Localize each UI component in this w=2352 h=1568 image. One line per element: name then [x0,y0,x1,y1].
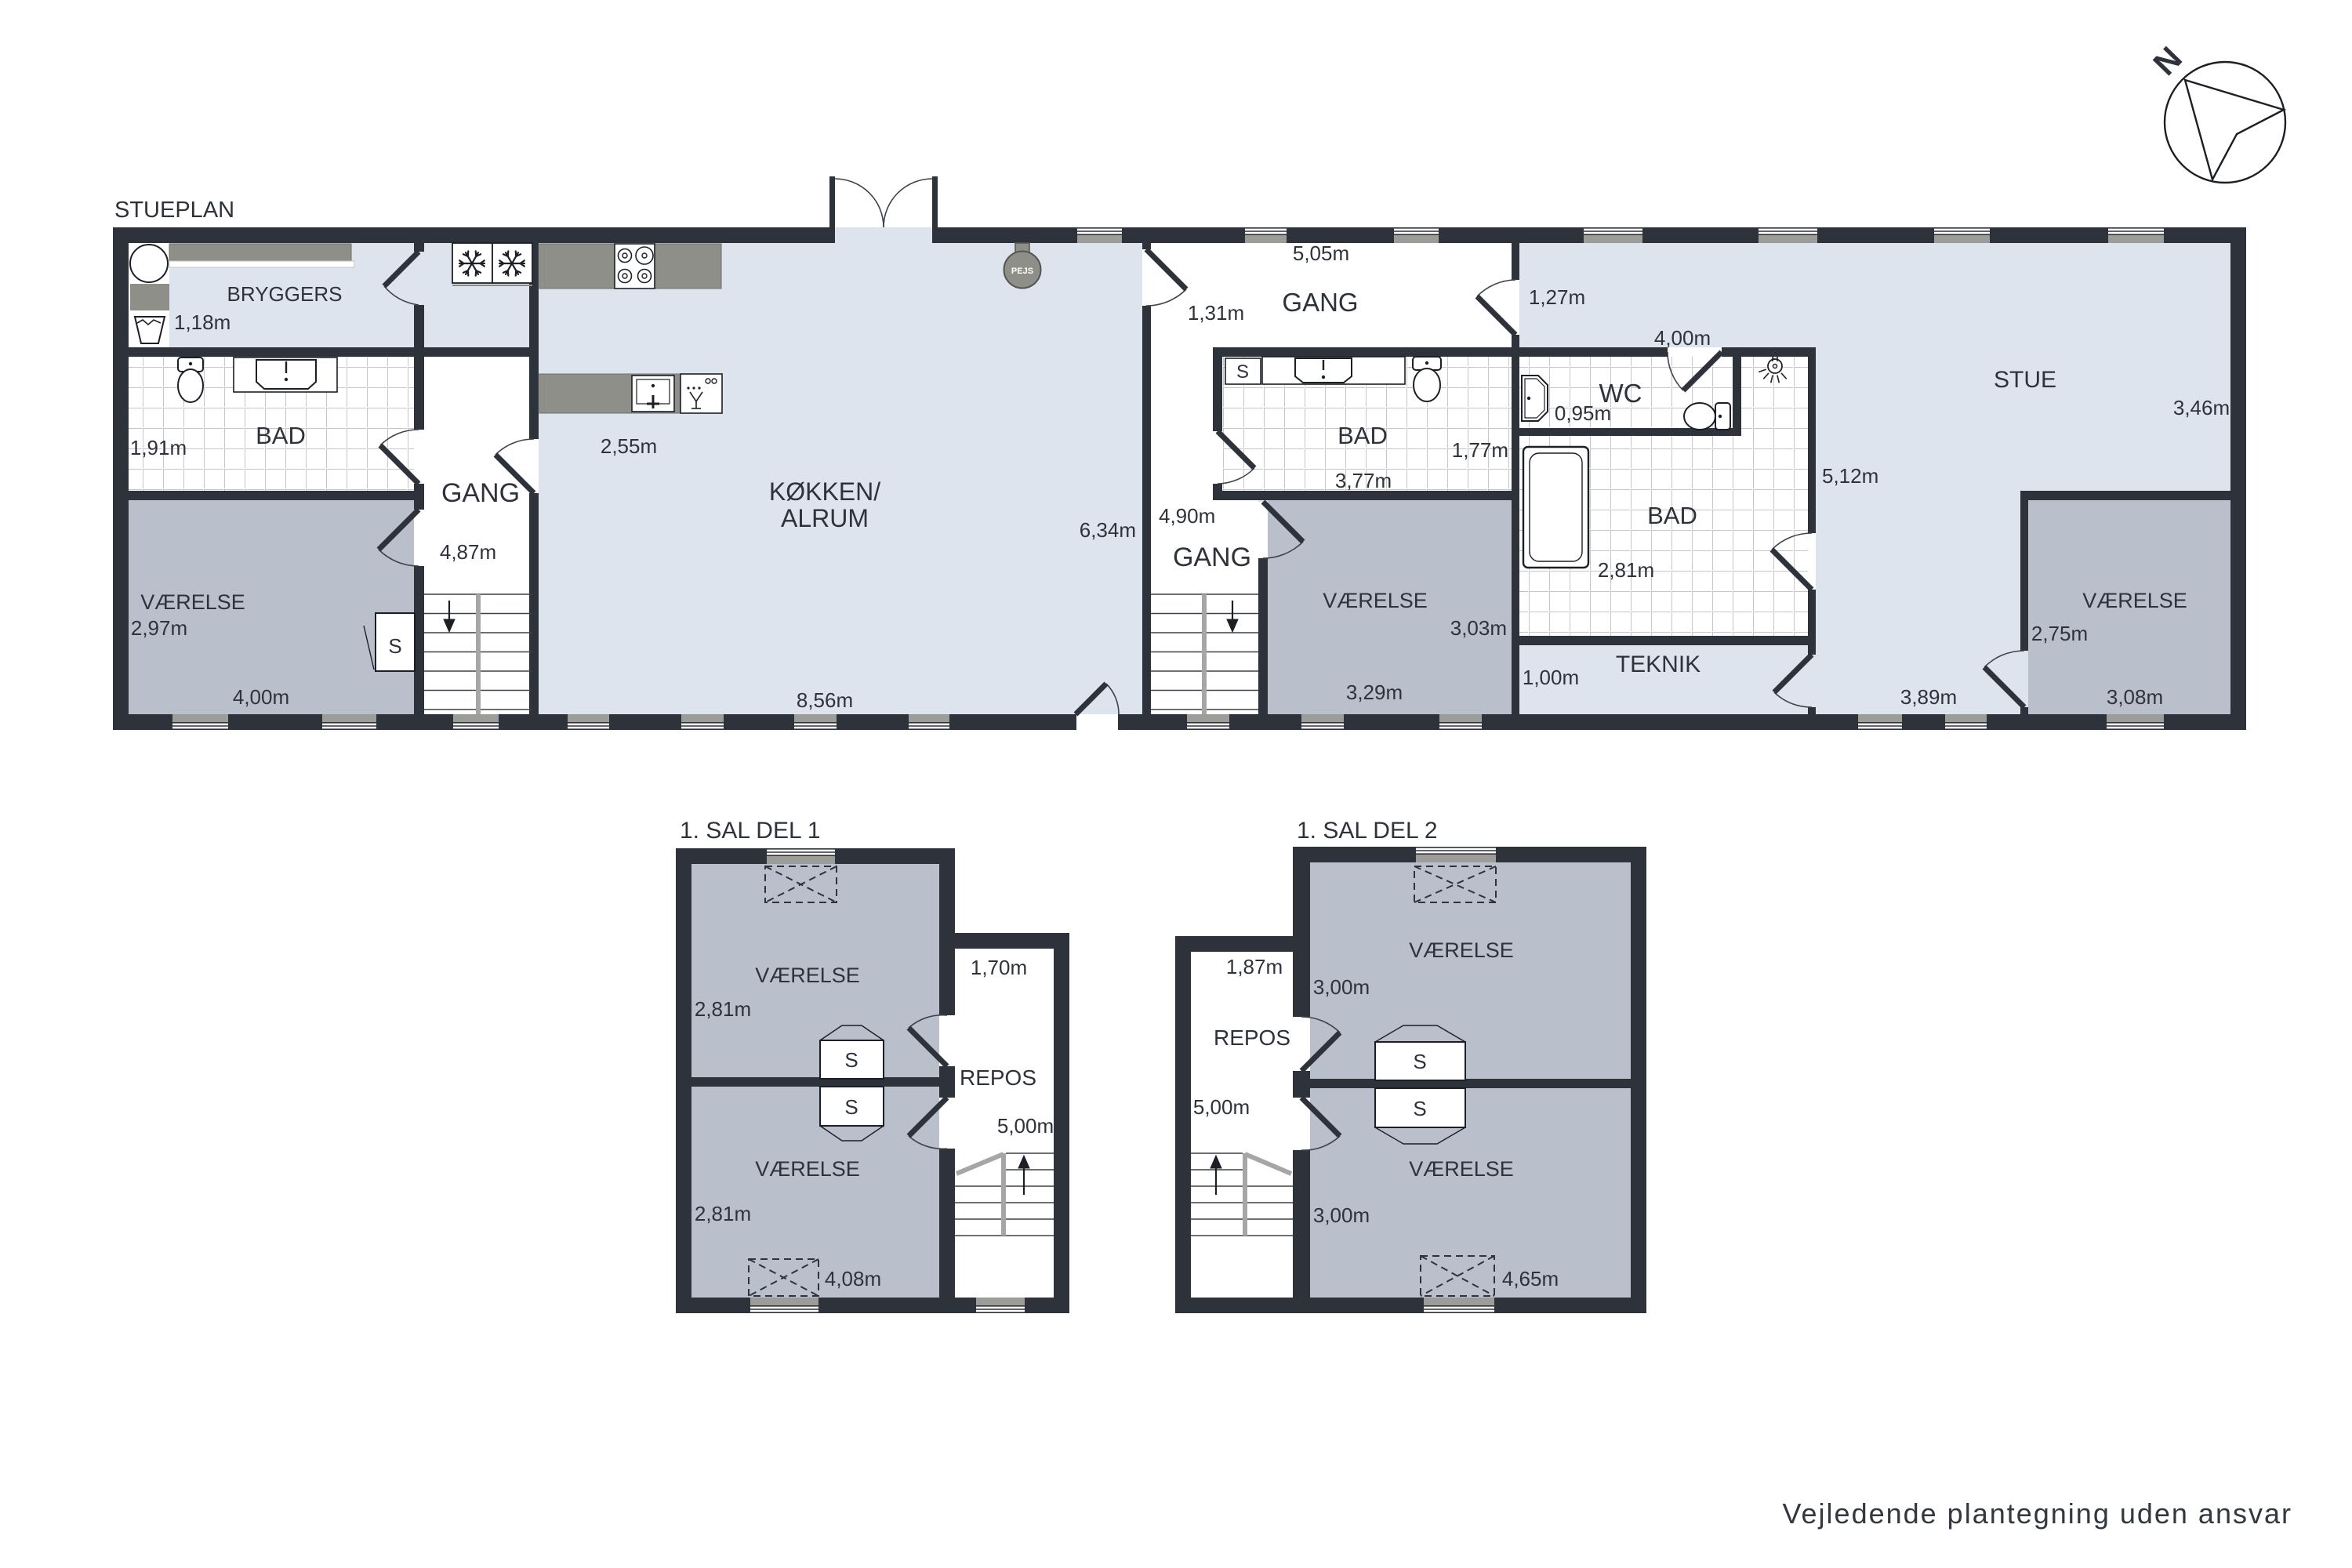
svg-text:BAD: BAD [1647,502,1697,529]
svg-text:4,90m: 4,90m [1159,504,1215,528]
svg-text:3,89m: 3,89m [1900,685,1957,709]
svg-text:2,81m: 2,81m [695,1202,751,1225]
svg-text:1. SAL DEL 1: 1. SAL DEL 1 [680,818,821,844]
svg-text:REPOS: REPOS [1214,1025,1290,1050]
svg-text:1,00m: 1,00m [1523,666,1579,689]
svg-text:5,00m: 5,00m [1193,1095,1250,1119]
svg-text:S: S [1236,361,1249,383]
svg-text:3,03m: 3,03m [1450,616,1507,640]
svg-text:ALRUM: ALRUM [781,504,869,532]
svg-text:PEJS: PEJS [1011,267,1033,276]
svg-text:KØKKEN/: KØKKEN/ [769,477,880,506]
svg-text:GANG: GANG [1282,288,1358,317]
svg-text:2,97m: 2,97m [131,616,187,640]
svg-text:BRYGGERS: BRYGGERS [227,282,343,306]
svg-text:TEKNIK: TEKNIK [1616,652,1700,677]
svg-text:STUEPLAN: STUEPLAN [114,198,234,223]
svg-text:BAD: BAD [256,422,306,449]
svg-text:S: S [1413,1097,1426,1120]
svg-text:S: S [844,1048,858,1072]
svg-text:2,75m: 2,75m [2031,622,2088,645]
svg-text:VÆRELSE: VÆRELSE [1409,1157,1514,1181]
svg-text:1. SAL DEL 2: 1. SAL DEL 2 [1297,818,1438,844]
svg-text:3,29m: 3,29m [1346,681,1403,704]
svg-text:6,34m: 6,34m [1080,518,1136,542]
svg-text:STUE: STUE [1994,367,2056,393]
svg-text:5,12m: 5,12m [1822,464,1878,488]
svg-text:4,00m: 4,00m [1654,326,1711,350]
svg-text:GANG: GANG [441,478,520,508]
svg-text:8,56m: 8,56m [797,688,853,712]
svg-text:3,08m: 3,08m [2107,685,2163,709]
svg-text:VÆRELSE: VÆRELSE [1323,589,1428,612]
svg-text:1,77m: 1,77m [1452,438,1508,462]
svg-text:2,55m: 2,55m [601,434,657,458]
svg-text:VÆRELSE: VÆRELSE [140,590,245,614]
svg-text:VÆRELSE: VÆRELSE [1409,938,1514,962]
svg-text:0,95m: 0,95m [1555,401,1611,425]
svg-text:1,18m: 1,18m [174,310,230,334]
svg-text:3,77m: 3,77m [1335,469,1392,492]
svg-text:3,00m: 3,00m [1313,1203,1370,1227]
svg-text:1,87m: 1,87m [1226,955,1283,978]
svg-text:VÆRELSE: VÆRELSE [755,964,860,987]
svg-text:VÆRELSE: VÆRELSE [2082,589,2187,612]
svg-text:2,81m: 2,81m [695,997,751,1021]
svg-text:4,08m: 4,08m [825,1267,881,1290]
svg-text:S: S [844,1095,858,1119]
svg-text:REPOS: REPOS [960,1065,1036,1090]
svg-text:S: S [1413,1050,1426,1073]
svg-text:3,46m: 3,46m [2173,396,2230,419]
svg-text:3,00m: 3,00m [1313,975,1370,999]
svg-text:1,70m: 1,70m [971,956,1027,979]
svg-text:5,00m: 5,00m [997,1114,1054,1138]
svg-text:4,00m: 4,00m [233,685,289,709]
svg-text:5,05m: 5,05m [1293,241,1349,265]
svg-text:GANG: GANG [1173,543,1251,572]
svg-text:VÆRELSE: VÆRELSE [755,1157,860,1181]
svg-text:4,65m: 4,65m [1502,1267,1559,1290]
svg-text:S: S [388,634,401,658]
svg-text:1,27m: 1,27m [1529,285,1585,309]
svg-text:4,87m: 4,87m [440,540,496,564]
svg-text:2,81m: 2,81m [1598,558,1654,582]
svg-text:1,91m: 1,91m [130,436,187,459]
svg-text:Vejledende plantegning uden an: Vejledende plantegning uden ansvar [1783,1497,2293,1530]
svg-text:BAD: BAD [1338,422,1388,449]
svg-text:1,31m: 1,31m [1188,301,1244,325]
